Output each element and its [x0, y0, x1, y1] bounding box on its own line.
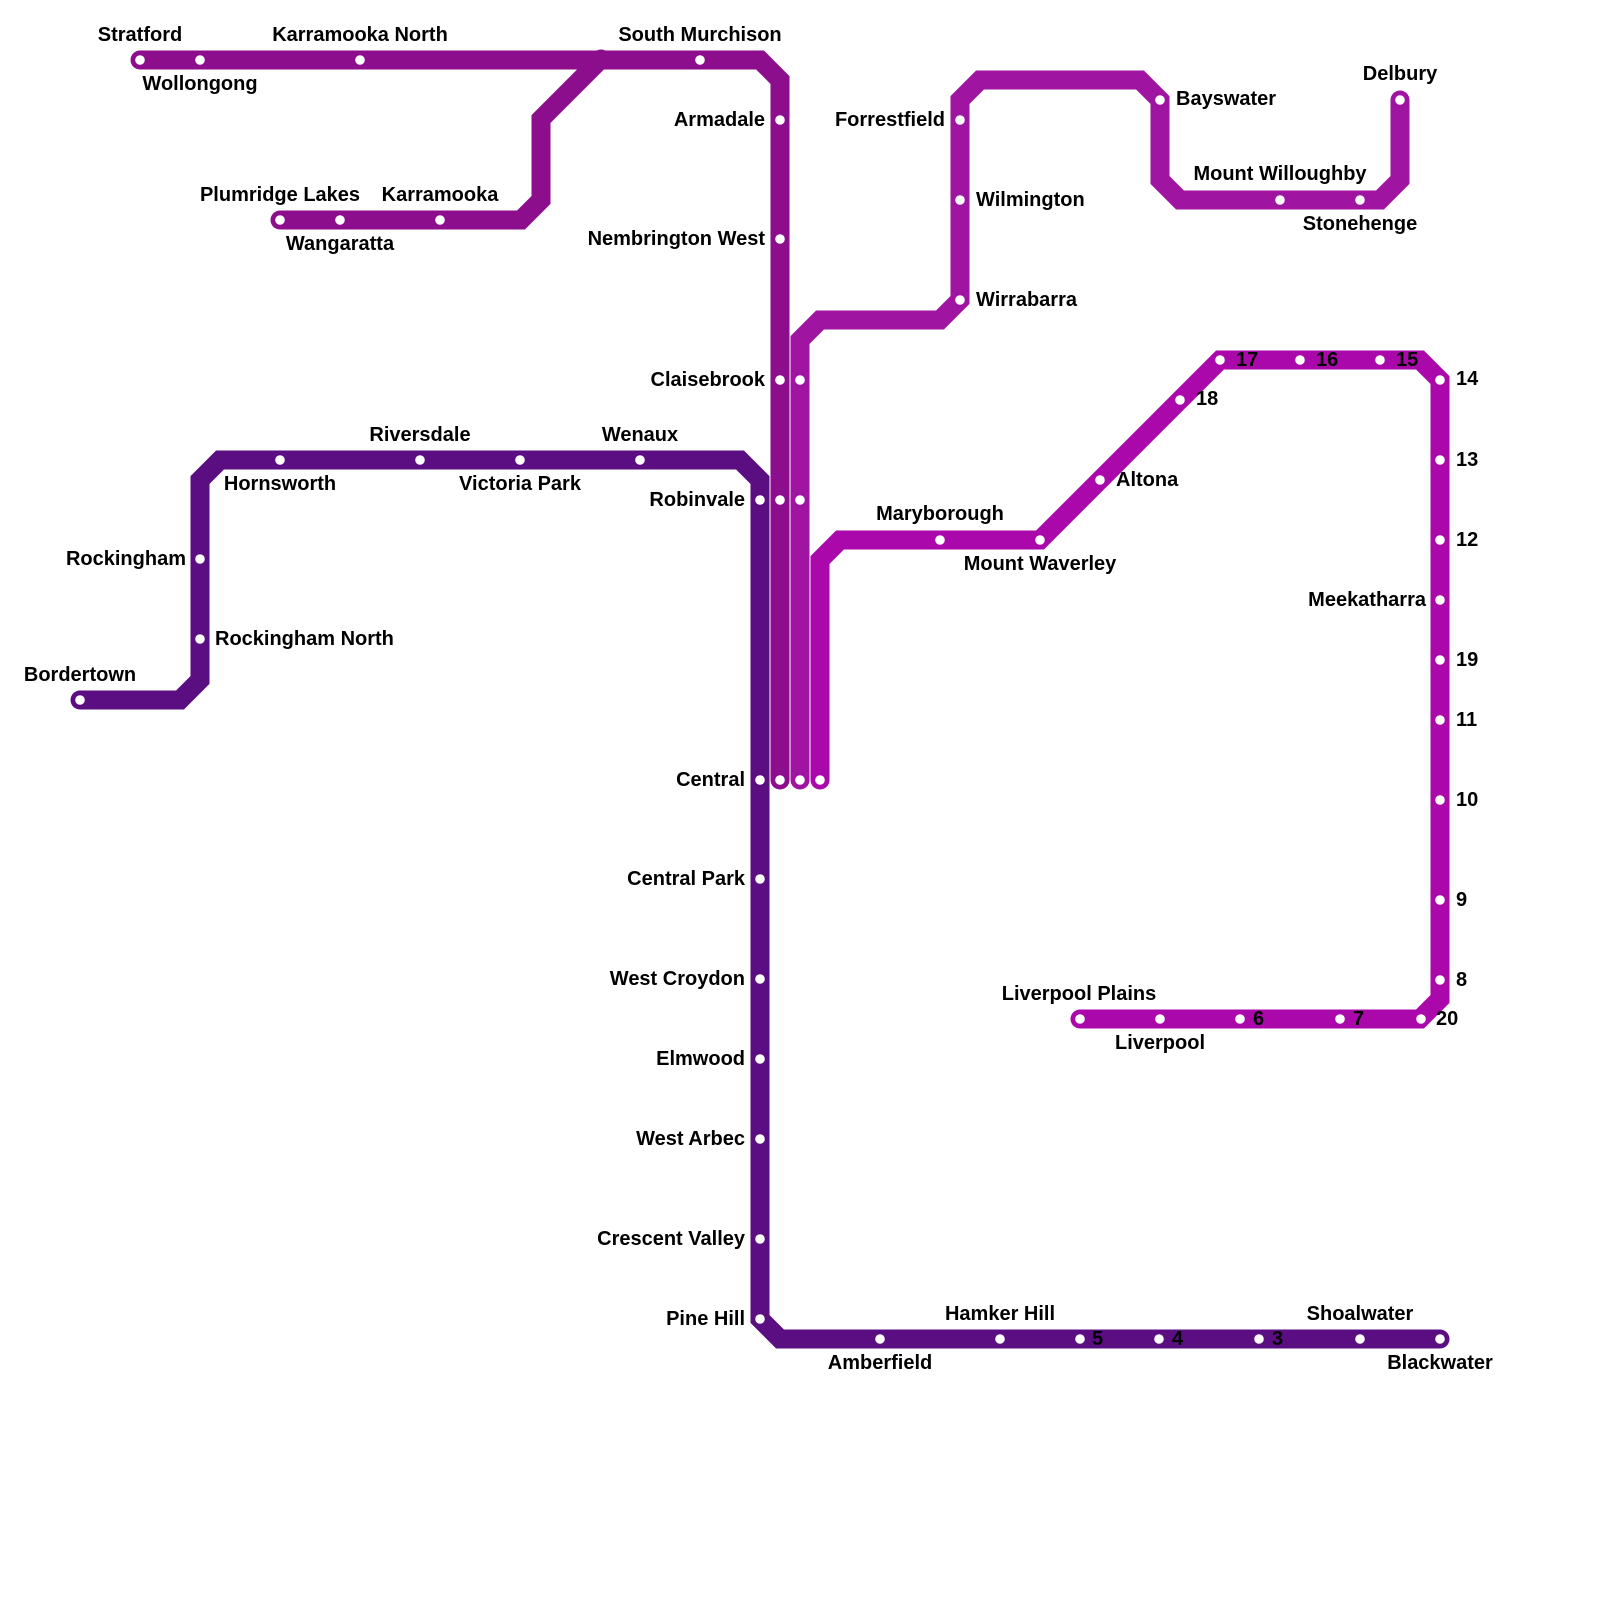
svg-text:Victoria Park: Victoria Park: [459, 473, 582, 495]
svg-text:Wollongong: Wollongong: [142, 73, 257, 95]
svg-text:Forrestfield: Forrestfield: [835, 109, 945, 131]
svg-text:Stonehenge: Stonehenge: [1303, 213, 1417, 235]
svg-text:Armadale: Armadale: [674, 109, 765, 131]
svg-text:Wirrabarra: Wirrabarra: [976, 289, 1078, 311]
svg-text:3: 3: [1272, 1328, 1283, 1350]
svg-text:Stratford: Stratford: [98, 24, 182, 46]
svg-text:Robinvale: Robinvale: [649, 489, 745, 511]
svg-text:Wenaux: Wenaux: [602, 424, 678, 446]
svg-text:South Murchison: South Murchison: [618, 24, 781, 46]
svg-text:Wangaratta: Wangaratta: [286, 233, 395, 255]
svg-text:Mount Willoughby: Mount Willoughby: [1193, 163, 1367, 185]
svg-text:16: 16: [1316, 349, 1338, 371]
svg-text:Karramooka: Karramooka: [382, 184, 500, 206]
svg-text:Hamker Hill: Hamker Hill: [945, 1303, 1055, 1325]
svg-text:13: 13: [1456, 449, 1478, 471]
svg-text:Hornsworth: Hornsworth: [224, 473, 336, 495]
svg-text:Wilmington: Wilmington: [976, 189, 1085, 211]
svg-text:Karramooka North: Karramooka North: [272, 24, 448, 46]
svg-text:Crescent Valley: Crescent Valley: [597, 1228, 746, 1250]
svg-text:7: 7: [1353, 1008, 1364, 1030]
svg-text:Bordertown: Bordertown: [24, 664, 136, 686]
svg-text:Nembrington West: Nembrington West: [588, 228, 766, 250]
svg-text:Maryborough: Maryborough: [876, 503, 1004, 525]
svg-text:6: 6: [1253, 1008, 1264, 1030]
svg-text:Mount Waverley: Mount Waverley: [964, 553, 1117, 575]
svg-text:9: 9: [1456, 889, 1467, 911]
svg-text:Rockingham: Rockingham: [66, 548, 186, 570]
svg-text:Claisebrook: Claisebrook: [651, 369, 766, 391]
svg-text:Altona: Altona: [1116, 469, 1179, 491]
svg-text:10: 10: [1456, 789, 1478, 811]
svg-text:19: 19: [1456, 649, 1478, 671]
svg-text:Shoalwater: Shoalwater: [1307, 1303, 1414, 1325]
svg-text:5: 5: [1092, 1328, 1103, 1350]
svg-text:Meekatharra: Meekatharra: [1308, 589, 1427, 611]
svg-text:Rockingham North: Rockingham North: [215, 628, 394, 650]
svg-text:Liverpool Plains: Liverpool Plains: [1002, 983, 1156, 1005]
svg-text:18: 18: [1196, 388, 1218, 410]
svg-text:Central Park: Central Park: [627, 868, 746, 890]
svg-text:4: 4: [1172, 1328, 1184, 1350]
svg-text:Elmwood: Elmwood: [656, 1048, 745, 1070]
svg-text:14: 14: [1456, 368, 1479, 390]
svg-text:11: 11: [1456, 709, 1477, 731]
svg-text:Delbury: Delbury: [1363, 63, 1438, 85]
svg-text:12: 12: [1456, 529, 1478, 551]
svg-text:Liverpool: Liverpool: [1115, 1032, 1205, 1054]
svg-text:Riversdale: Riversdale: [369, 424, 470, 446]
svg-text:Plumridge Lakes: Plumridge Lakes: [200, 184, 360, 206]
svg-text:West Croydon: West Croydon: [610, 968, 745, 990]
svg-text:15: 15: [1396, 349, 1418, 371]
svg-text:West Arbec: West Arbec: [636, 1128, 745, 1150]
svg-text:17: 17: [1236, 349, 1258, 371]
svg-text:8: 8: [1456, 969, 1467, 991]
svg-text:Pine Hill: Pine Hill: [666, 1308, 745, 1330]
svg-text:20: 20: [1436, 1008, 1458, 1030]
svg-text:Blackwater: Blackwater: [1387, 1352, 1493, 1374]
svg-text:Bayswater: Bayswater: [1176, 88, 1276, 110]
svg-text:Amberfield: Amberfield: [828, 1352, 932, 1374]
svg-text:Central: Central: [676, 769, 745, 791]
